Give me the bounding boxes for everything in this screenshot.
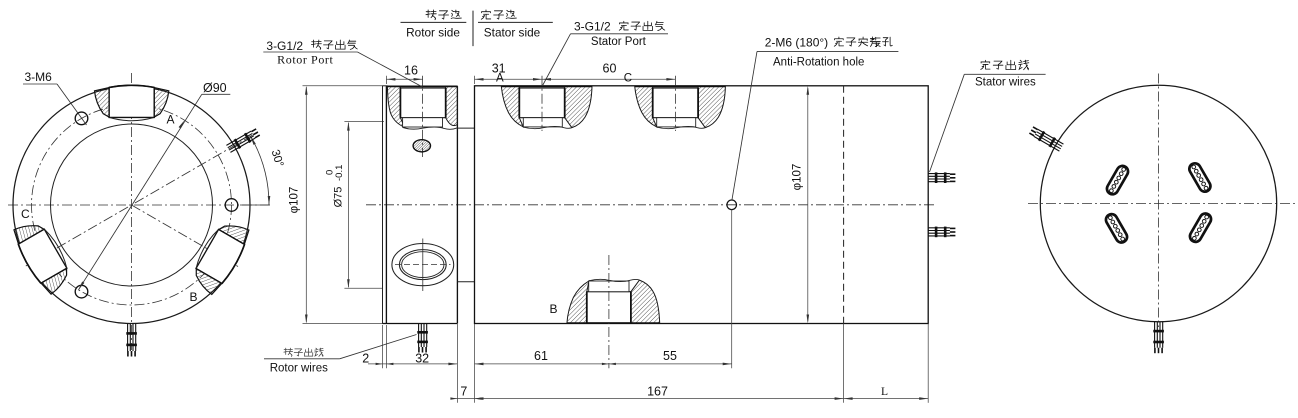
svg-text:61: 61 (534, 349, 548, 363)
svg-text:A: A (167, 113, 175, 127)
svg-text:φ107: φ107 (792, 164, 804, 191)
svg-text:Stator Port: Stator Port (591, 36, 647, 48)
svg-text:3-M6: 3-M6 (25, 70, 53, 84)
svg-text:Stator side: Stator side (484, 26, 541, 40)
svg-text:7: 7 (460, 385, 467, 399)
svg-text:L: L (881, 386, 888, 398)
svg-text:55: 55 (663, 349, 677, 363)
svg-text:Ø90: Ø90 (203, 81, 227, 95)
svg-text:Rotor Port: Rotor Port (277, 53, 333, 67)
svg-text:φ107: φ107 (289, 187, 301, 214)
svg-text:C: C (21, 207, 30, 221)
svg-text:Rotor side: Rotor side (406, 26, 460, 40)
svg-text:B: B (550, 302, 558, 316)
svg-text:16: 16 (404, 64, 418, 78)
svg-text:C: C (624, 73, 632, 85)
svg-text:-0.1: -0.1 (334, 165, 345, 181)
svg-text:3-G1/2: 3-G1/2 (266, 39, 303, 53)
svg-text:Anti-Rotation hole: Anti-Rotation hole (773, 56, 864, 68)
svg-text:167: 167 (647, 385, 668, 399)
svg-text:A: A (496, 73, 504, 85)
svg-text:B: B (190, 290, 198, 304)
svg-text:Stator wires: Stator wires (975, 77, 1036, 89)
svg-text:Ø75: Ø75 (333, 187, 345, 208)
svg-text:60: 60 (603, 62, 617, 76)
svg-text:2: 2 (362, 352, 369, 366)
svg-text:32: 32 (415, 352, 429, 366)
svg-text:Rotor wires: Rotor wires (270, 362, 328, 374)
svg-text:2-M6 (180°): 2-M6 (180°) (765, 36, 829, 50)
svg-text:3-G1/2: 3-G1/2 (574, 20, 611, 34)
